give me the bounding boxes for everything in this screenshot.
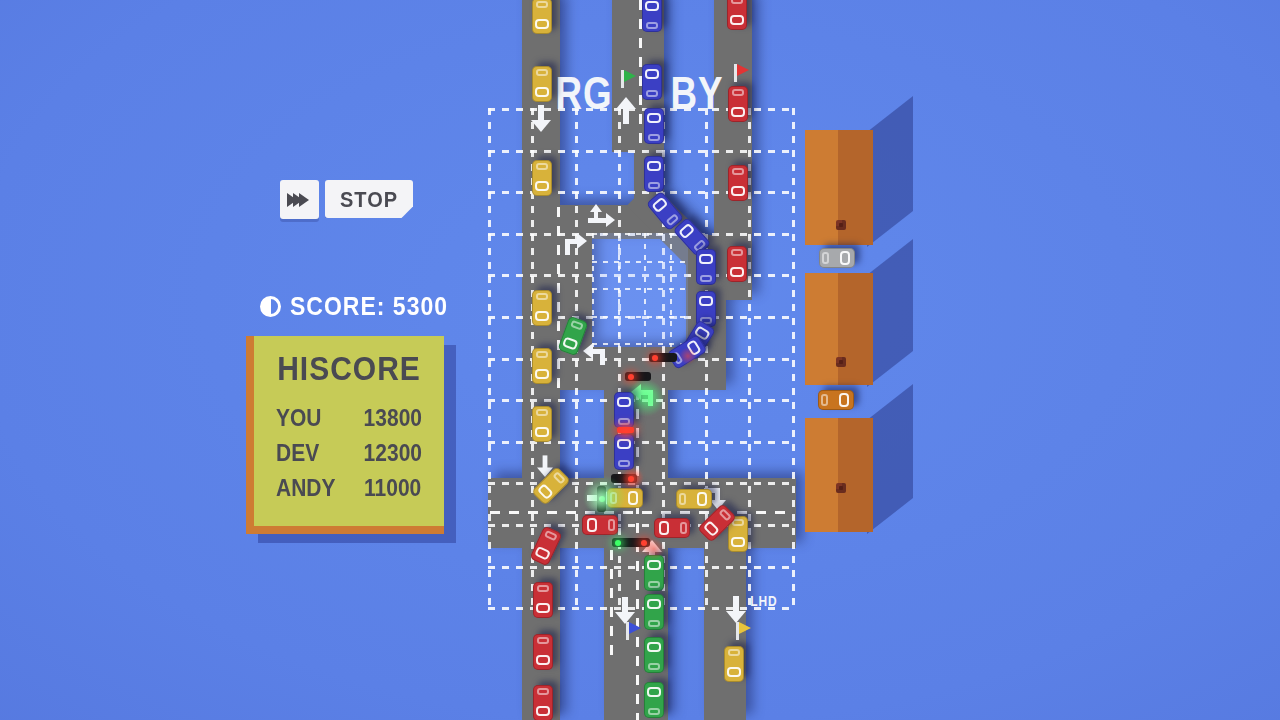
car-red <box>533 685 553 720</box>
hiscore-row: YOU13800 <box>276 400 422 435</box>
road-arrow <box>723 593 749 623</box>
traffic-light-green <box>615 540 621 546</box>
building <box>805 273 873 385</box>
car-body <box>533 634 553 670</box>
car-body <box>642 0 662 32</box>
car-body <box>818 390 854 410</box>
flag-marker <box>626 622 642 640</box>
car-body <box>532 348 552 384</box>
flag-marker <box>736 622 752 640</box>
road-arrow <box>528 102 554 132</box>
car-body <box>532 160 552 196</box>
car-red <box>728 165 748 201</box>
hiscore-row: DEV12300 <box>276 435 422 470</box>
car-yellow <box>532 66 552 102</box>
car-body <box>533 582 553 618</box>
hiscore-rows: YOU13800DEV12300ANDY11000 <box>254 400 444 505</box>
car-red <box>536 528 556 564</box>
car-yellow <box>724 646 744 682</box>
car-body <box>532 0 552 34</box>
score-icon <box>260 296 281 317</box>
car-body <box>727 0 747 30</box>
grid-line <box>592 261 688 263</box>
car-yellow <box>541 468 561 504</box>
hiscore-row-score: 12300 <box>364 439 422 465</box>
lane-marking <box>490 511 794 514</box>
flag-marker <box>621 70 637 88</box>
hiscore-row-name: DEV <box>276 439 364 465</box>
car-body <box>533 685 553 720</box>
stop-button-label: STOP <box>340 186 398 212</box>
car-red <box>728 86 748 122</box>
grid-line <box>592 233 594 347</box>
chimney <box>836 357 846 367</box>
car-green <box>644 682 664 718</box>
light-glow <box>618 463 648 493</box>
car-body <box>532 406 552 442</box>
grid-line <box>670 233 672 347</box>
traffic-light-red <box>652 355 658 361</box>
car-blue <box>644 108 664 144</box>
score-display: SCORE: 5300 <box>260 293 448 320</box>
car-red <box>533 582 553 618</box>
road-label: RG <box>555 67 612 119</box>
grid-line <box>488 150 792 153</box>
hiscore-row-name: ANDY <box>276 474 364 500</box>
car-green <box>563 318 583 354</box>
car-body <box>819 248 855 268</box>
car-gray <box>827 240 847 276</box>
flag-cloth <box>624 70 636 82</box>
car-yellow <box>532 348 552 384</box>
game-viewport: RGBYLHD STOP SCORE: 5300 HISCORE YOU1380… <box>0 0 1280 720</box>
car-body <box>532 66 552 102</box>
car-red <box>533 634 553 670</box>
flag-cloth <box>737 64 749 76</box>
car-yellow <box>532 160 552 196</box>
traffic-light[interactable] <box>649 353 677 362</box>
road-label: BY <box>671 67 724 119</box>
car-blue <box>642 0 662 32</box>
light-glow <box>620 372 672 424</box>
car-body <box>728 86 748 122</box>
building <box>805 418 873 532</box>
light-glow <box>676 344 700 368</box>
flag-cloth <box>739 622 751 634</box>
car-blue <box>696 249 716 285</box>
hiscore-row-score: 13800 <box>364 404 422 430</box>
grid-line <box>592 316 688 318</box>
flag-cloth <box>629 622 641 634</box>
building <box>805 130 873 245</box>
grid-line <box>618 233 620 347</box>
grid-line <box>792 108 795 610</box>
car-body <box>644 682 664 718</box>
flag-marker <box>734 64 750 82</box>
car-body <box>644 637 664 673</box>
car-yellow <box>532 290 552 326</box>
hiscore-title: HISCORE <box>254 350 444 387</box>
road-arrow <box>612 594 638 624</box>
car-body <box>644 594 664 630</box>
light-glow <box>578 476 622 520</box>
car-yellow <box>684 481 704 517</box>
car-red <box>727 246 747 282</box>
chimney <box>836 220 846 230</box>
fast-forward-icon <box>291 193 309 207</box>
car-blue <box>655 193 675 229</box>
light-glow <box>613 418 639 444</box>
score-value: 5300 <box>393 292 448 322</box>
car-body <box>644 156 664 192</box>
car-body <box>644 108 664 144</box>
car-red <box>707 505 727 541</box>
hiscore-row-name: YOU <box>276 404 364 430</box>
light-glow <box>639 534 669 564</box>
car-blue <box>644 156 664 192</box>
grid-line <box>644 233 646 347</box>
hiscore-row-score: 11000 <box>364 474 421 500</box>
car-body <box>728 165 748 201</box>
car-orange <box>826 382 846 418</box>
grid-line <box>592 288 688 290</box>
car-yellow <box>532 406 552 442</box>
car-body <box>727 246 747 282</box>
hiscore-row: ANDY11000 <box>276 470 422 505</box>
road-arrow <box>583 341 609 371</box>
road-arrow <box>561 231 587 261</box>
fast-forward-button[interactable] <box>280 180 319 219</box>
score-label: SCORE: <box>290 292 385 322</box>
road-arrow <box>613 97 639 127</box>
road-label: LHD <box>750 592 777 609</box>
stop-button[interactable]: STOP <box>325 180 413 218</box>
car-body <box>724 646 744 682</box>
car-blue <box>642 64 662 100</box>
build-zone[interactable] <box>592 233 688 347</box>
car-body <box>696 249 716 285</box>
lane-marking <box>557 207 560 388</box>
car-body <box>532 290 552 326</box>
road-arrow <box>586 205 612 235</box>
car-yellow <box>532 0 552 34</box>
car-body <box>642 64 662 100</box>
car-red <box>727 0 747 30</box>
traffic-map[interactable]: RGBYLHD <box>0 0 1280 720</box>
car-green <box>644 637 664 673</box>
chimney <box>836 483 846 493</box>
car-green <box>644 594 664 630</box>
hiscore-panel: HISCORE YOU13800DEV12300ANDY11000 <box>246 336 444 534</box>
